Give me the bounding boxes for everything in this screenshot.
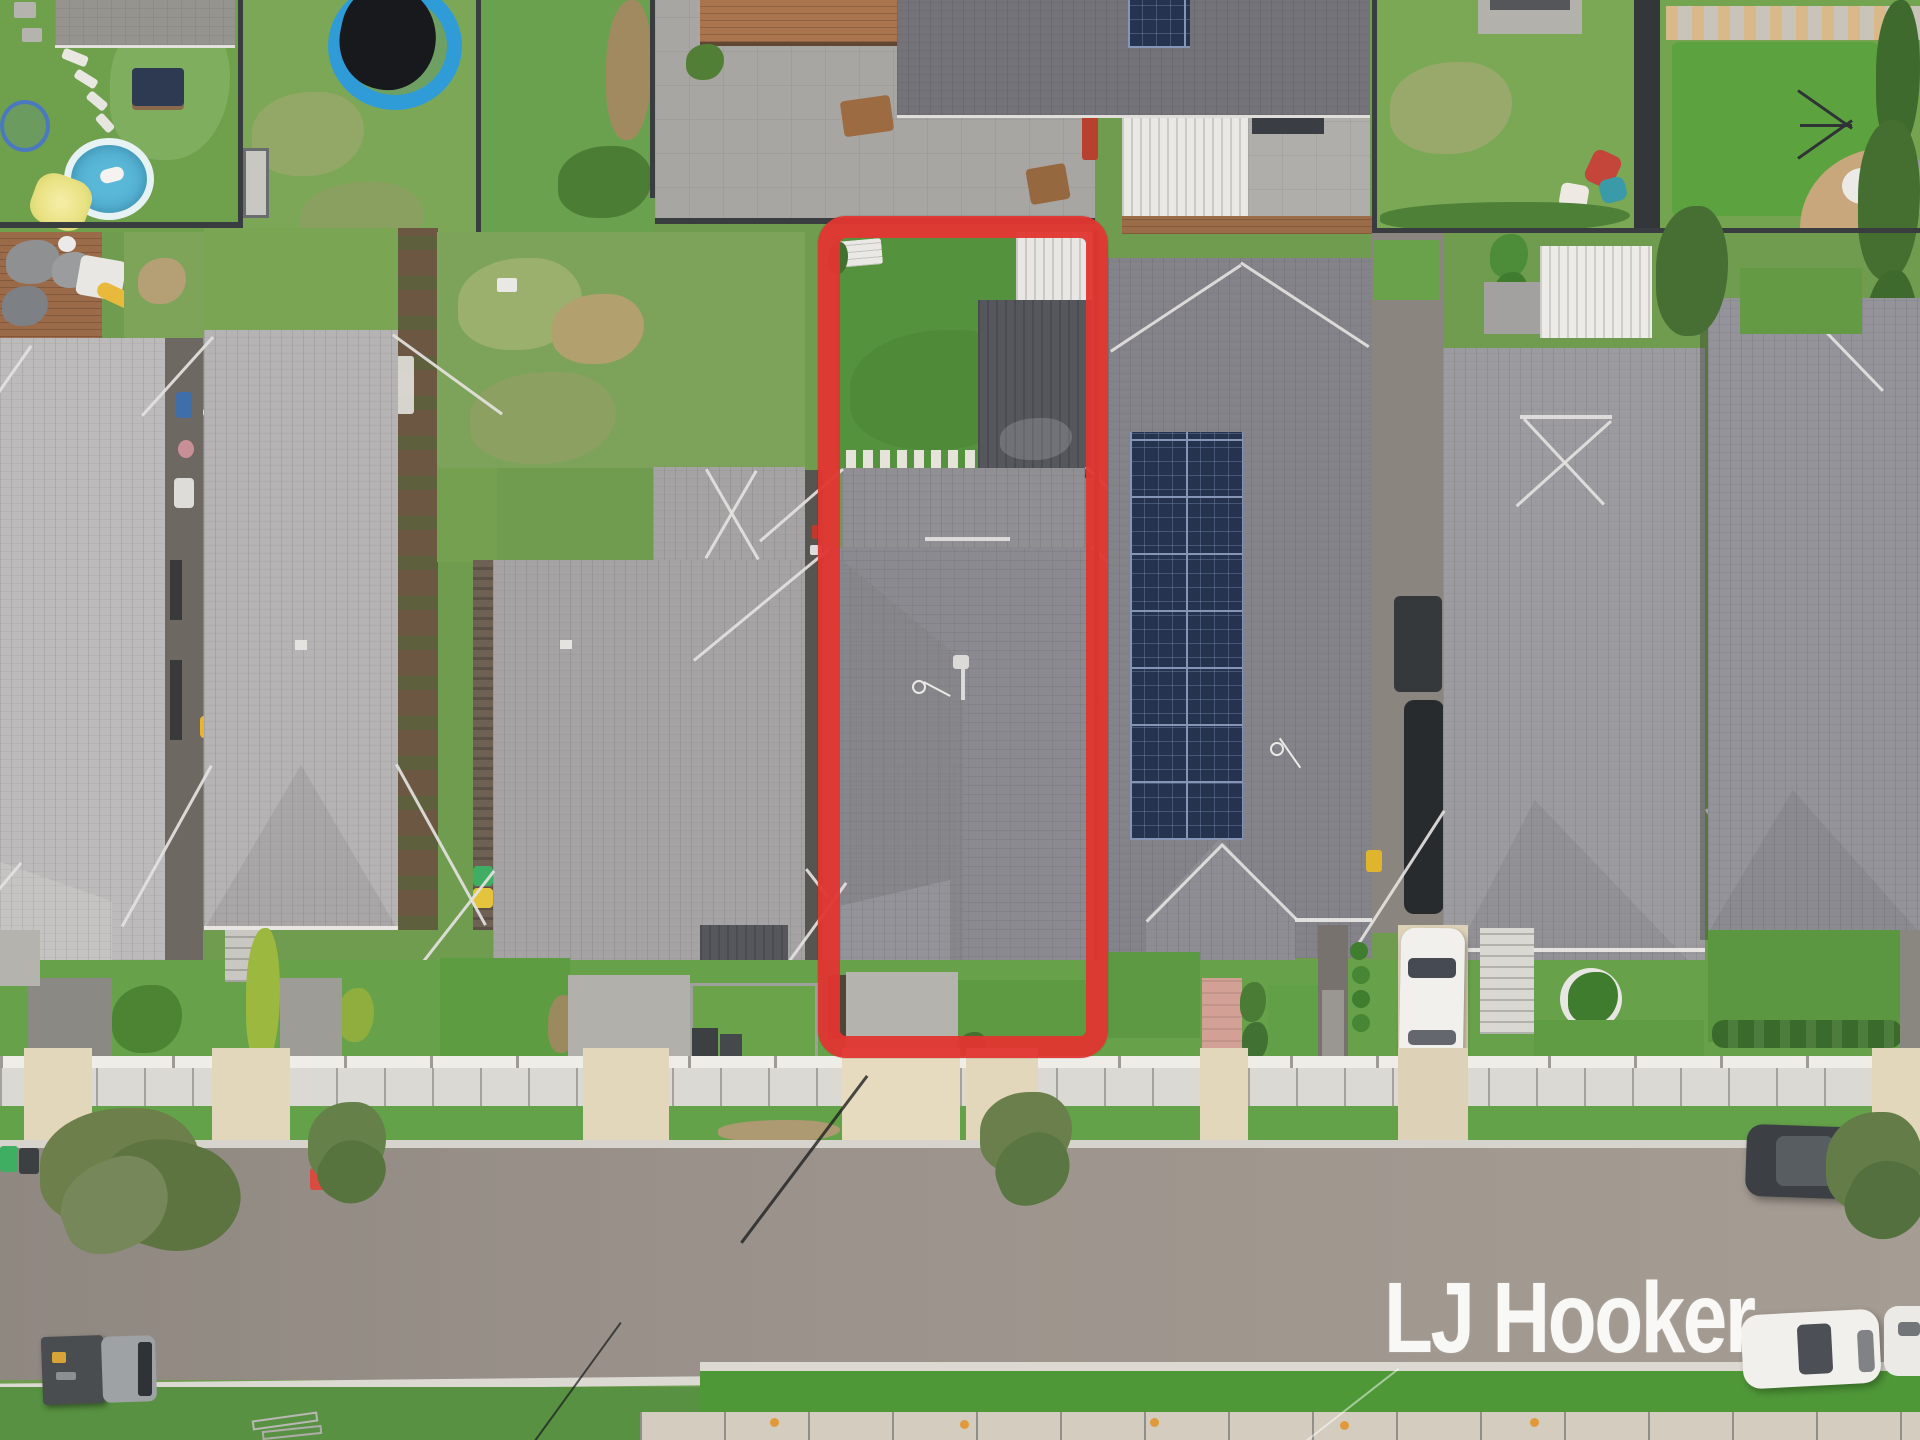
truck-equipment [56, 1372, 76, 1380]
construction-strip [640, 1412, 1920, 1440]
temp-fence-foot [1150, 1418, 1159, 1427]
house5-front-lawn [1108, 952, 1200, 1038]
garden-gate [243, 148, 269, 218]
truck-equipment [52, 1352, 66, 1363]
water-tank [1404, 700, 1444, 914]
suv-windshield [1408, 958, 1456, 978]
driveway-crossing [1398, 1048, 1468, 1144]
wheelie-bin-dark [19, 1148, 39, 1174]
tall-hedge [1858, 120, 1920, 280]
partial-car-glass [1898, 1322, 1920, 1336]
garden-trellis [396, 356, 414, 414]
round-bush [1350, 942, 1368, 960]
round-bush [1352, 1014, 1370, 1032]
opposite-verge [700, 1371, 1920, 1416]
driveway-crossing [1200, 1048, 1248, 1144]
small-lawn [1740, 268, 1862, 334]
house6-top-ridge-horizontal [1520, 415, 1612, 419]
deck-strip [1122, 216, 1372, 234]
side-lawn [1374, 240, 1440, 300]
dark-planter-box [692, 1028, 718, 1058]
yellow-marker [1366, 850, 1382, 872]
driveway-crossing [583, 1048, 669, 1144]
wooden-bench [1025, 163, 1071, 205]
parked-car-white-partial [1884, 1306, 1920, 1376]
street-curb [0, 1140, 1920, 1148]
round-bush [1352, 966, 1370, 984]
temp-fence-foot [1530, 1418, 1539, 1427]
roof-edge [1490, 0, 1570, 10]
wall-window [170, 560, 182, 620]
wheelie-bin-green [0, 1146, 18, 1172]
house1-porch [0, 930, 40, 986]
fence-line [1372, 228, 1920, 233]
white-car-rear-glass [1857, 1330, 1875, 1373]
driveway-crossing [842, 1048, 960, 1144]
pink-pots [178, 440, 194, 458]
suv-rear-window [1408, 1030, 1456, 1045]
round-bush [1352, 990, 1370, 1008]
patchy-lawn-h3-left [437, 468, 497, 562]
driveway-crossing [212, 1048, 290, 1144]
clothesline [1800, 124, 1852, 127]
white-car-windshield [1797, 1323, 1834, 1375]
outdoor-table [132, 68, 184, 106]
flatbed-truck-body [41, 1335, 105, 1405]
window-wall [1252, 118, 1324, 134]
white-chairs [174, 478, 194, 508]
wooden-bench [840, 95, 895, 138]
house5-lawn-right [1268, 985, 1322, 1061]
temp-fence-foot [770, 1418, 779, 1427]
white-garage-roof [1122, 118, 1248, 224]
backyard-grass-h2 [204, 228, 424, 332]
white-shed-roof [1540, 246, 1652, 338]
wall-window [170, 660, 182, 740]
fence-line [238, 0, 243, 228]
roof-vent [560, 640, 572, 649]
dark-planter-box [720, 1034, 742, 1058]
driveway-paver-strip [1322, 990, 1344, 1060]
fence-line [1372, 0, 1377, 232]
house1-side-wall [165, 338, 203, 978]
property-outline [818, 216, 1108, 1058]
climbing-dome-toy [0, 100, 50, 152]
solar-panel-array-small [1128, 0, 1190, 48]
house6-porch-steps [1480, 928, 1534, 1034]
blue-bin [176, 392, 192, 418]
ac-unit [1394, 596, 1442, 692]
watermark-text: LJ Hooker [1384, 1268, 1754, 1368]
stepping-stone [22, 28, 42, 42]
dark-pergola-strip [1634, 0, 1660, 232]
temp-fence-foot [960, 1420, 969, 1429]
stepping-stone [14, 2, 36, 18]
white-garden-item [497, 278, 517, 292]
fence-line [650, 0, 655, 198]
white-pot [58, 236, 76, 252]
deck-pad [1484, 282, 1540, 334]
truck-windshield [138, 1342, 152, 1396]
house5-gutter [1295, 918, 1372, 922]
house7-driveway-edge [1900, 930, 1920, 1065]
house7-hedge-row [1712, 1020, 1902, 1048]
pergola-roof [55, 0, 235, 48]
house3-roof-main [493, 560, 805, 975]
solar-panel-array [1130, 432, 1243, 840]
roof-vent [295, 640, 307, 650]
temp-fence-foot [1340, 1421, 1349, 1430]
aerial-photo: LJ Hooker [0, 0, 1920, 1440]
